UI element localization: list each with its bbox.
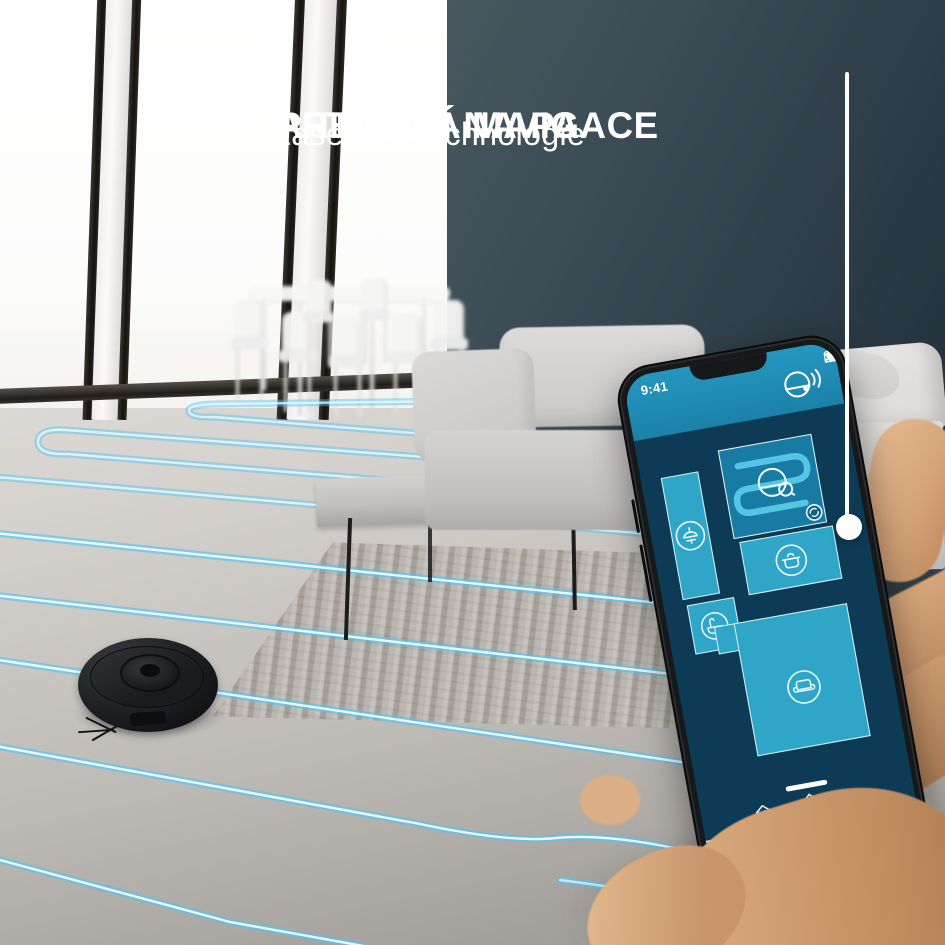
robot-connected-icon[interactable] bbox=[777, 359, 827, 404]
cooking-pot-icon bbox=[771, 541, 810, 580]
robot-vacuum bbox=[76, 628, 226, 746]
marketing-banner: 9:41 bbox=[0, 0, 945, 945]
ceiling-lamp-icon bbox=[672, 517, 709, 554]
callout-dot bbox=[836, 514, 862, 540]
callout-line bbox=[845, 72, 849, 520]
map-room-dining[interactable] bbox=[661, 471, 720, 600]
headline-subtitle: Laserová technologie bbox=[273, 116, 585, 153]
cleaning-progress-icon bbox=[804, 502, 825, 523]
pinky-finger bbox=[580, 775, 640, 825]
table-leg bbox=[344, 518, 352, 640]
sofa-icon bbox=[783, 667, 825, 709]
robot-position-icon bbox=[750, 460, 800, 507]
sheet-handle[interactable] bbox=[785, 779, 827, 791]
robot-lidar-center bbox=[140, 664, 160, 677]
map-room-cleaning[interactable] bbox=[718, 434, 827, 539]
robot-front-sensor bbox=[130, 711, 167, 726]
dining-table bbox=[250, 286, 450, 301]
map-room-living[interactable] bbox=[734, 603, 871, 756]
